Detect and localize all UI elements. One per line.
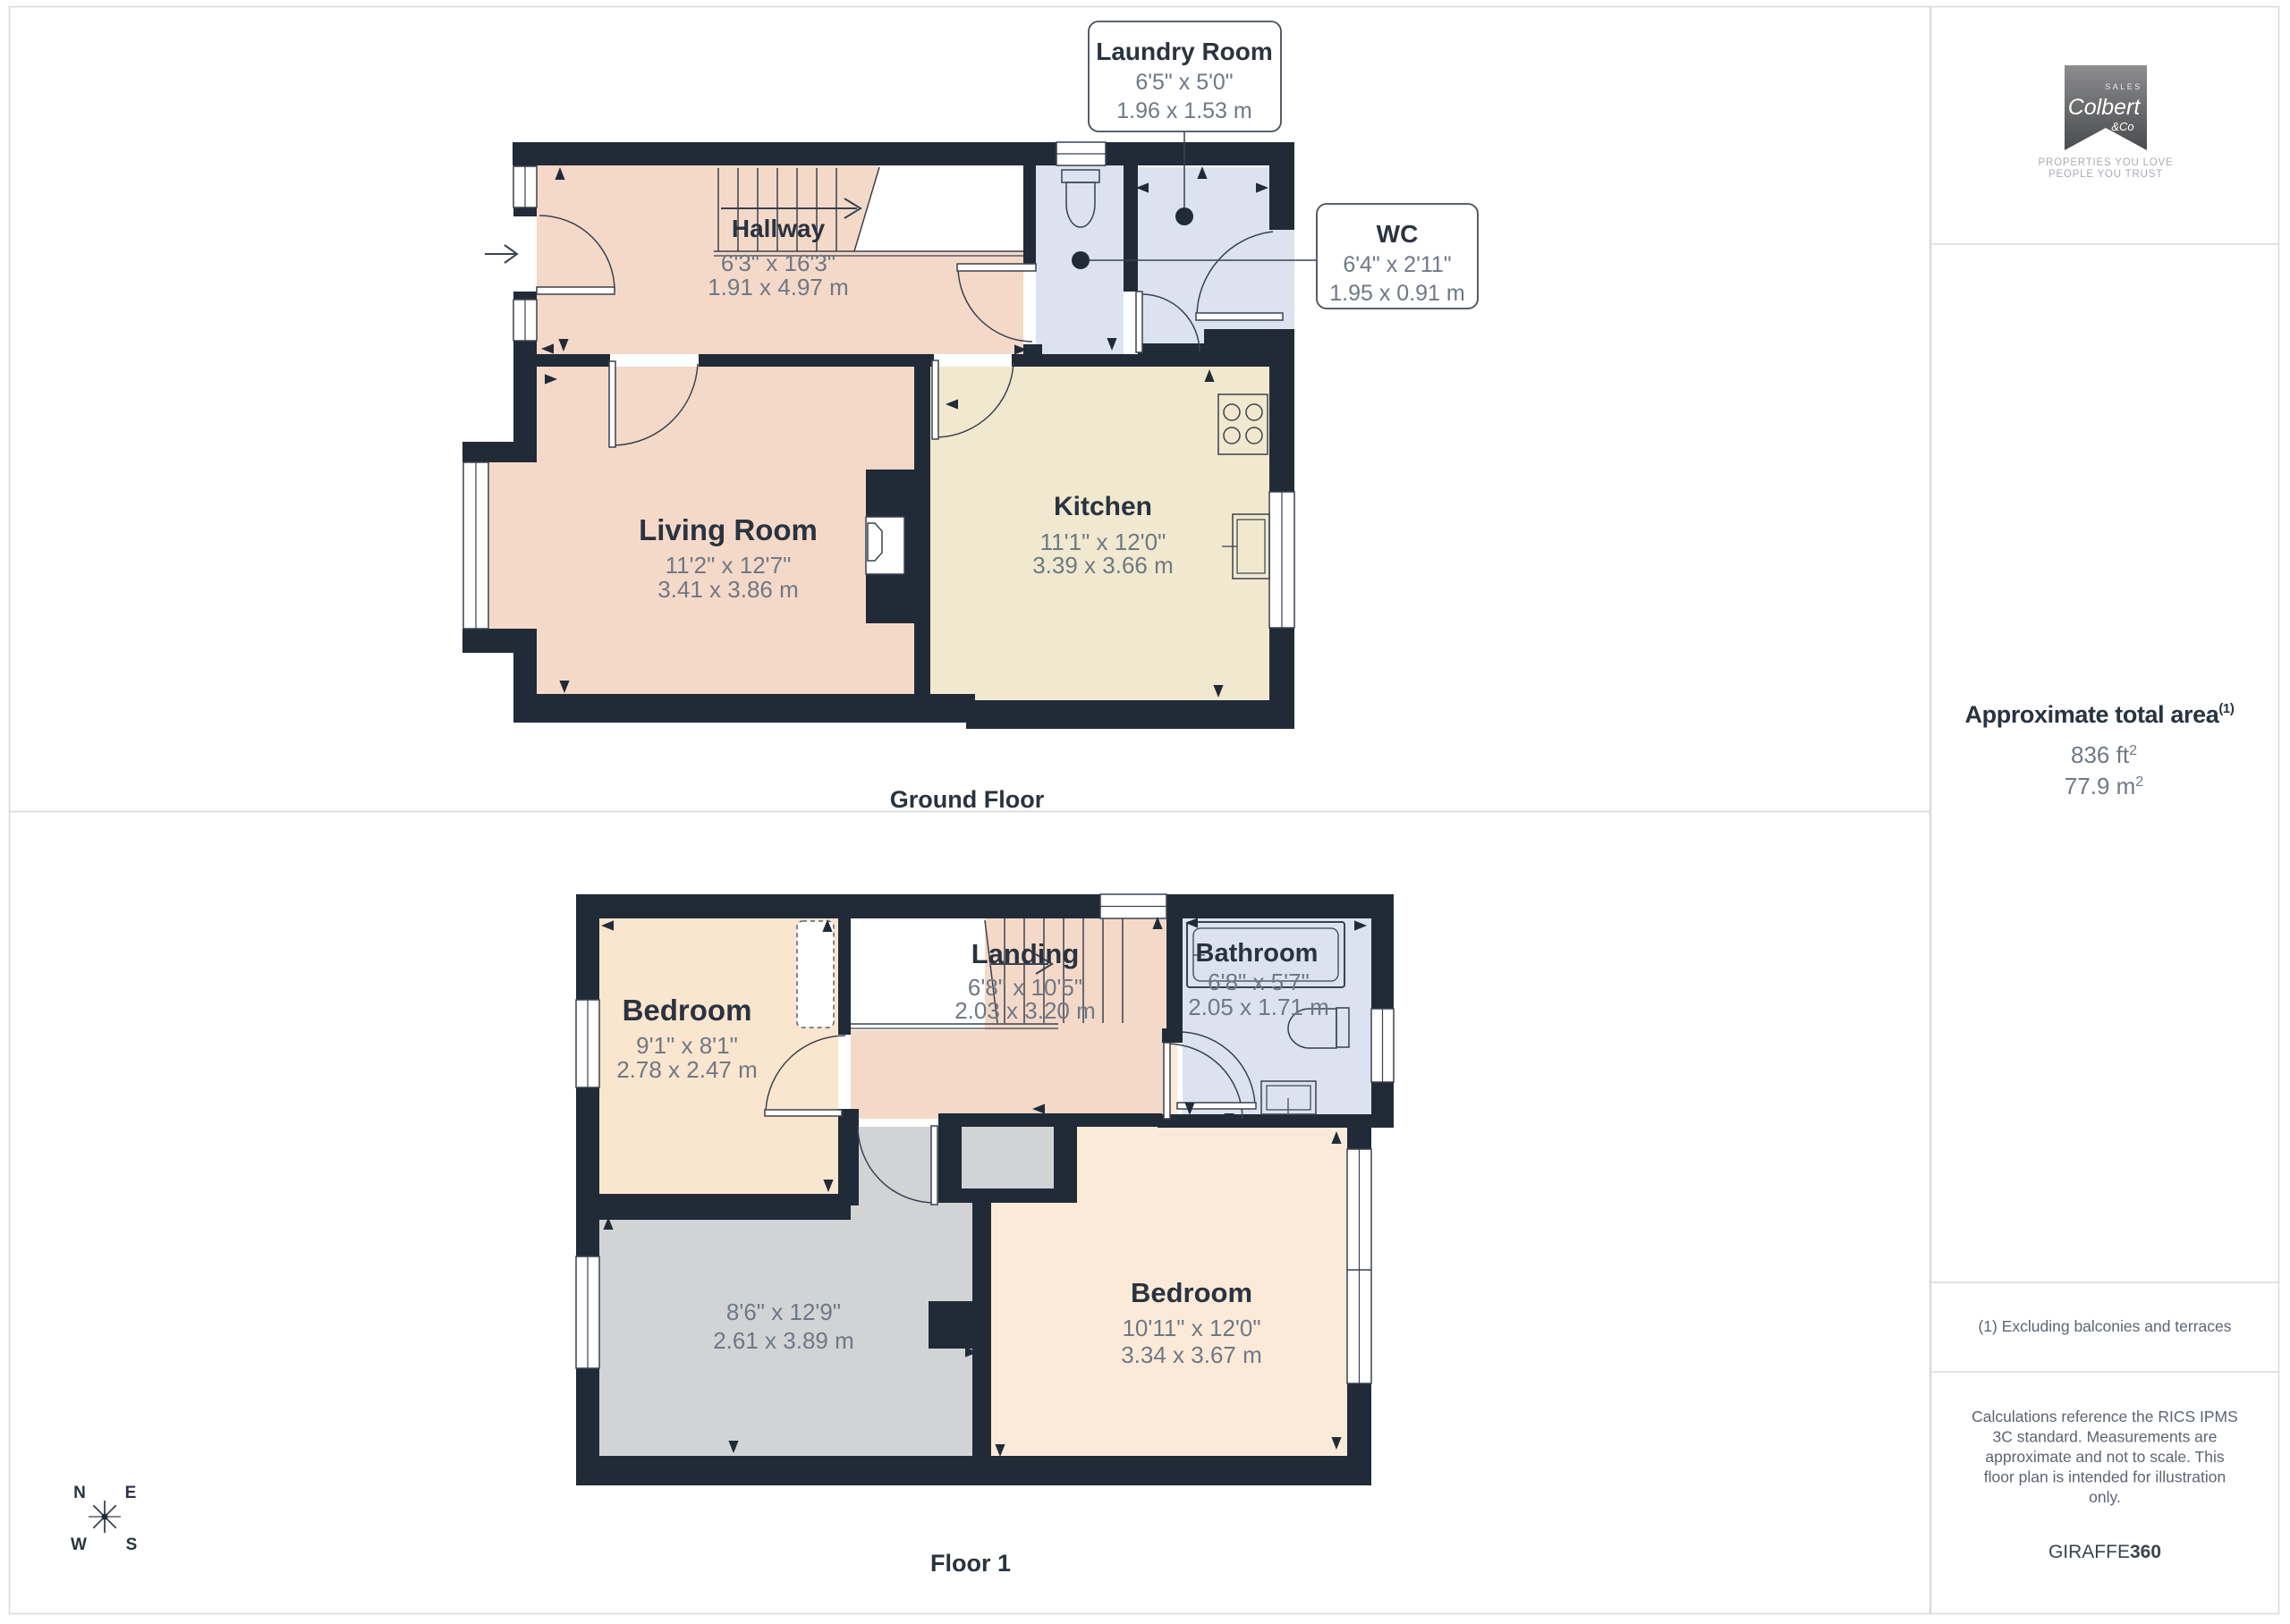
- svg-text:77.9 m2: 77.9 m2: [2065, 773, 2144, 799]
- svg-text:1.91 x 4.97 m: 1.91 x 4.97 m: [708, 274, 849, 300]
- svg-text:2.78 x 2.47 m: 2.78 x 2.47 m: [616, 1056, 758, 1083]
- svg-text:Laundry Room: Laundry Room: [1096, 38, 1273, 65]
- svg-text:W: W: [71, 1535, 87, 1554]
- svg-text:N: N: [73, 1484, 86, 1502]
- svg-text:1.95 x 0.91 m: 1.95 x 0.91 m: [1329, 281, 1464, 306]
- svg-text:3.41 x 3.86 m: 3.41 x 3.86 m: [657, 576, 799, 603]
- svg-text:PROPERTIES YOU LOVE: PROPERTIES YOU LOVE: [2039, 157, 2174, 168]
- svg-text:floor plan is intended for ill: floor plan is intended for illustration: [1984, 1468, 2226, 1486]
- svg-text:Floor 1: Floor 1: [930, 1550, 1011, 1577]
- svg-text:S: S: [126, 1535, 138, 1554]
- svg-text:6'3" x 16'3": 6'3" x 16'3": [721, 250, 835, 276]
- svg-text:3.39 x 3.66 m: 3.39 x 3.66 m: [1032, 552, 1174, 579]
- svg-text:Living Room: Living Room: [639, 513, 818, 546]
- svg-text:2.03 x 3.20 m: 2.03 x 3.20 m: [954, 997, 1096, 1024]
- svg-text:PEOPLE YOU TRUST: PEOPLE YOU TRUST: [2048, 169, 2163, 180]
- svg-text:Bedroom: Bedroom: [623, 994, 752, 1027]
- svg-text:(1) Excluding balconies and te: (1) Excluding balconies and terraces: [1978, 1317, 2231, 1335]
- svg-text:GIRAFFE360: GIRAFFE360: [2048, 1542, 2161, 1562]
- svg-text:6'8" x 5'7": 6'8" x 5'7": [1208, 968, 1310, 995]
- svg-text:1.96 x 1.53 m: 1.96 x 1.53 m: [1116, 98, 1251, 123]
- svg-text:836 ft2: 836 ft2: [2071, 741, 2137, 768]
- svg-text:2.05 x 1.71 m: 2.05 x 1.71 m: [1188, 994, 1329, 1020]
- svg-text:E: E: [125, 1484, 137, 1502]
- svg-text:3.34 x 3.67 m: 3.34 x 3.67 m: [1121, 1341, 1262, 1368]
- svg-text:Ground Floor: Ground Floor: [890, 786, 1045, 813]
- svg-text:Calculations reference the RIC: Calculations reference the RICS IPMS: [1972, 1408, 2238, 1425]
- svg-text:6'5" x 5'0": 6'5" x 5'0": [1135, 70, 1233, 95]
- svg-text:8'6" x 12'9": 8'6" x 12'9": [726, 1298, 841, 1325]
- svg-text:10'11" x 12'0": 10'11" x 12'0": [1122, 1315, 1260, 1341]
- svg-text:6'4" x 2'11": 6'4" x 2'11": [1343, 252, 1451, 277]
- svg-text:Bedroom: Bedroom: [1131, 1277, 1252, 1308]
- svg-text:2.61 x 3.89 m: 2.61 x 3.89 m: [713, 1327, 854, 1354]
- svg-text:only.: only.: [2089, 1488, 2121, 1506]
- svg-text:&Co: &Co: [2111, 120, 2133, 133]
- svg-text:Kitchen: Kitchen: [1054, 492, 1152, 521]
- svg-text:SALES: SALES: [2105, 82, 2142, 91]
- svg-text:9'1" x 8'1": 9'1" x 8'1": [636, 1032, 738, 1059]
- svg-text:approximate and not to scale.: approximate and not to scale. This: [1985, 1448, 2224, 1466]
- svg-text:11'2" x 12'7": 11'2" x 12'7": [666, 552, 792, 579]
- svg-text:Landing: Landing: [971, 938, 1080, 969]
- svg-text:Approximate total area(1): Approximate total area(1): [1965, 701, 2235, 728]
- svg-text:Hallway: Hallway: [732, 215, 826, 242]
- svg-text:WC: WC: [1377, 220, 1419, 248]
- svg-text:Colbert: Colbert: [2068, 95, 2142, 120]
- svg-text:Bathroom: Bathroom: [1196, 939, 1319, 968]
- svg-text:3C standard. Measurements are: 3C standard. Measurements are: [1993, 1428, 2218, 1446]
